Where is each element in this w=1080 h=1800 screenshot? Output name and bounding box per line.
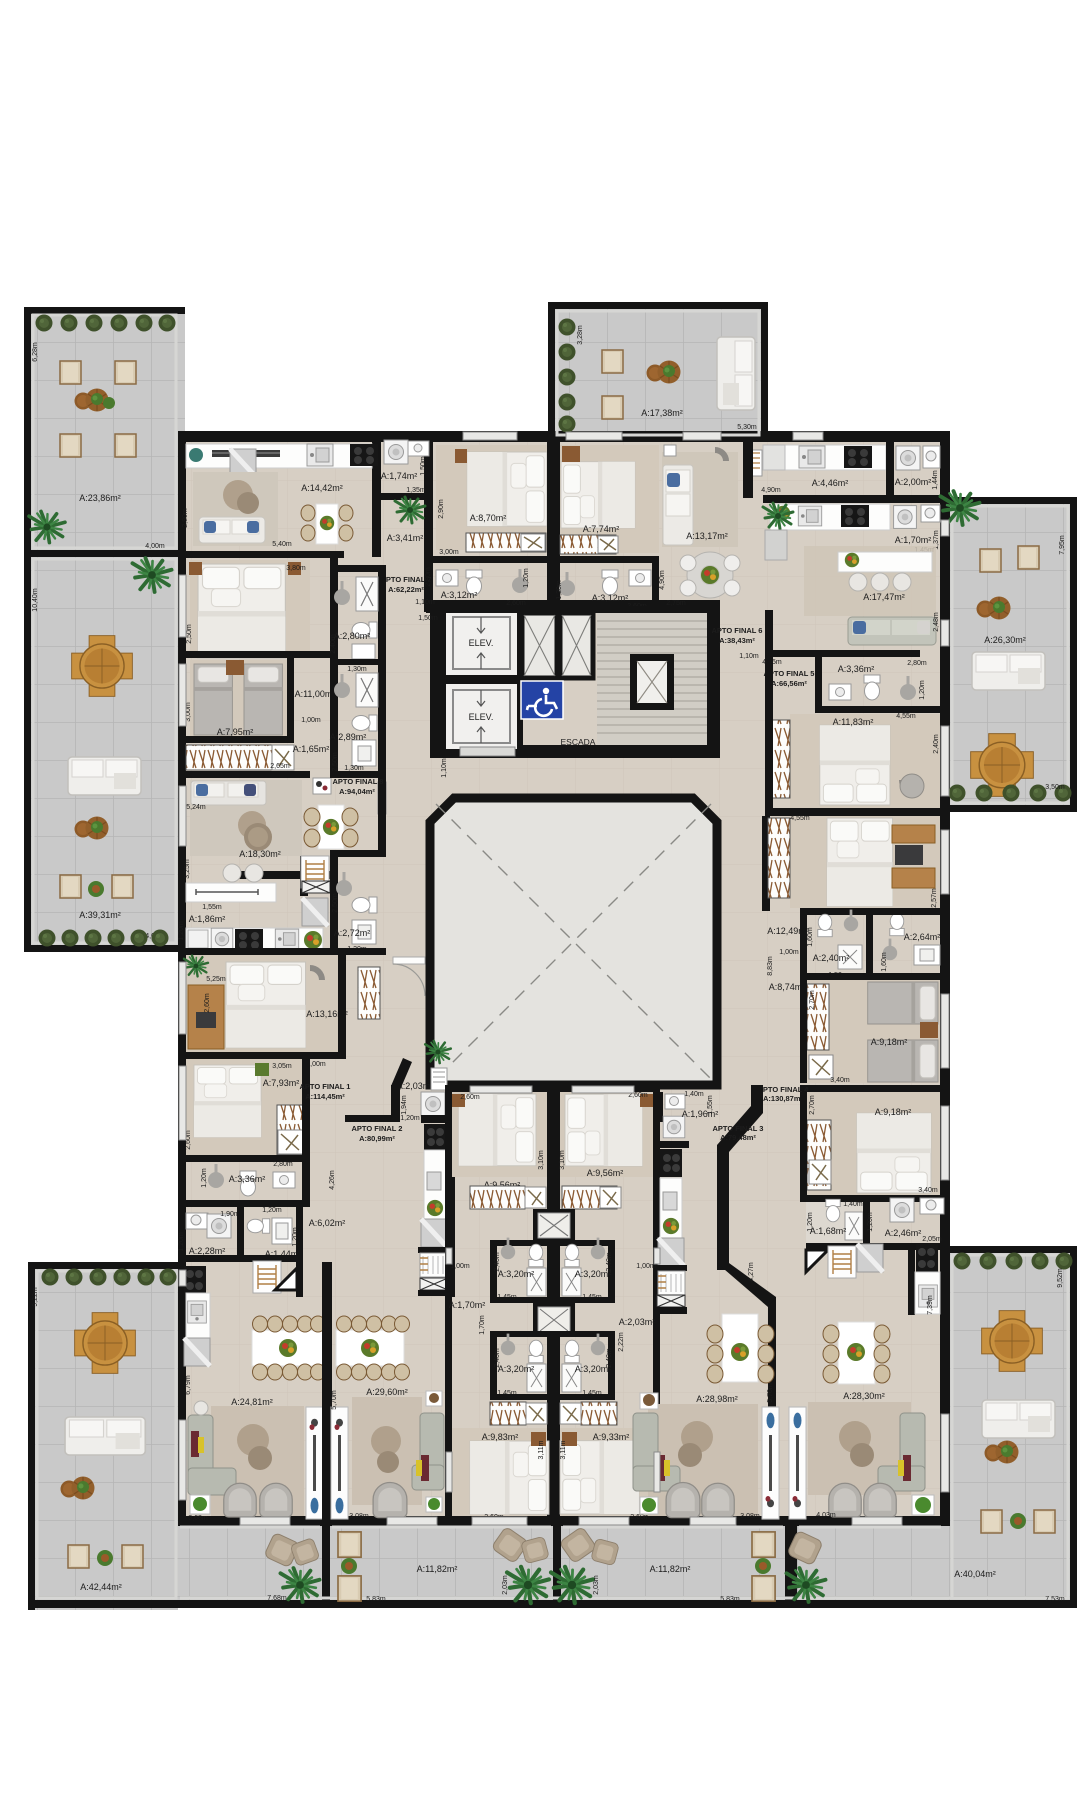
svg-text:5,30m: 5,30m bbox=[737, 424, 757, 431]
svg-text:3,10m: 3,10m bbox=[559, 1150, 566, 1170]
svg-text:5,70m: 5,70m bbox=[331, 1390, 338, 1410]
svg-text:APTO FINAL 2: APTO FINAL 2 bbox=[352, 1124, 403, 1133]
svg-text:A:4,46m²: A:4,46m² bbox=[812, 478, 849, 488]
svg-text:A:3,36m²: A:3,36m² bbox=[229, 1174, 266, 1184]
svg-text:A:1,68m²: A:1,68m² bbox=[810, 1226, 847, 1236]
svg-text:A:9,18m²: A:9,18m² bbox=[875, 1107, 912, 1117]
svg-text:A:8,70m²: A:8,70m² bbox=[470, 513, 507, 523]
svg-text:A:3,20m²: A:3,20m² bbox=[498, 1364, 535, 1374]
svg-text:APTO FINAL 1: APTO FINAL 1 bbox=[300, 1082, 351, 1091]
svg-text:A:1,65m²: A:1,65m² bbox=[293, 744, 330, 754]
svg-text:4,55m: 4,55m bbox=[790, 815, 810, 822]
svg-text:A:62,22m²: A:62,22m² bbox=[388, 585, 424, 594]
svg-text:A:11,82m²: A:11,82m² bbox=[650, 1564, 691, 1574]
svg-text:2,80m: 2,80m bbox=[425, 567, 432, 587]
svg-text:4,03m: 4,03m bbox=[816, 1512, 836, 1519]
svg-text:2,22m: 2,22m bbox=[618, 1332, 625, 1352]
svg-text:3,40m: 3,40m bbox=[918, 1187, 938, 1194]
svg-text:3,28m: 3,28m bbox=[577, 325, 584, 345]
svg-text:A:2,80m²: A:2,80m² bbox=[334, 631, 371, 641]
svg-text:1,10m: 1,10m bbox=[739, 653, 759, 660]
svg-text:1,20m: 1,20m bbox=[262, 1207, 282, 1214]
svg-text:A:1,86m²: A:1,86m² bbox=[189, 914, 226, 924]
svg-text:1,00m: 1,00m bbox=[636, 1263, 656, 1270]
svg-text:A:11,82m²: A:11,82m² bbox=[417, 1564, 458, 1574]
svg-text:2,50m: 2,50m bbox=[332, 752, 339, 772]
svg-text:2,70m: 2,70m bbox=[809, 1095, 816, 1115]
svg-text:2,50m: 2,50m bbox=[332, 893, 339, 913]
svg-text:A:9,18m²: A:9,18m² bbox=[871, 1037, 908, 1047]
svg-text:1,00m: 1,00m bbox=[301, 717, 321, 724]
svg-text:1,20m: 1,20m bbox=[807, 1212, 814, 1232]
svg-text:5,83m: 5,83m bbox=[720, 1596, 740, 1603]
svg-text:1,44m: 1,44m bbox=[932, 470, 939, 490]
svg-text:2,60m: 2,60m bbox=[506, 600, 526, 607]
svg-text:2,90m: 2,90m bbox=[438, 499, 445, 519]
svg-text:1,55m: 1,55m bbox=[202, 904, 222, 911]
svg-text:1,00m: 1,00m bbox=[450, 1263, 470, 1270]
svg-text:3,00m: 3,00m bbox=[439, 549, 459, 556]
svg-text:A:1,74m²: A:1,74m² bbox=[381, 471, 418, 481]
svg-text:2,65m: 2,65m bbox=[270, 763, 290, 770]
svg-text:A:28,98m²: A:28,98m² bbox=[696, 1394, 738, 1404]
svg-text:1,10m: 1,10m bbox=[415, 599, 435, 606]
svg-text:2,57m: 2,57m bbox=[931, 888, 938, 908]
svg-text:2,80m: 2,80m bbox=[907, 660, 927, 667]
svg-text:1,35m: 1,35m bbox=[406, 487, 426, 494]
svg-text:A:3,41m²: A:3,41m² bbox=[387, 533, 424, 543]
svg-text:1,20m: 1,20m bbox=[556, 580, 563, 600]
svg-text:4,90m: 4,90m bbox=[761, 487, 781, 494]
svg-text:ELEV.: ELEV. bbox=[469, 712, 494, 722]
svg-text:A:2,00m²: A:2,00m² bbox=[895, 477, 932, 487]
svg-text:A:23,86m²: A:23,86m² bbox=[79, 493, 121, 503]
svg-text:7,95m: 7,95m bbox=[1059, 535, 1066, 555]
svg-text:2,80m: 2,80m bbox=[182, 508, 189, 528]
svg-text:A:18,30m²: A:18,30m² bbox=[239, 849, 281, 859]
svg-text:A:3,20m²: A:3,20m² bbox=[498, 1269, 535, 1279]
svg-text:A:2,40m²: A:2,40m² bbox=[813, 953, 850, 963]
svg-text:4,26m: 4,26m bbox=[329, 1170, 336, 1190]
svg-text:7,68m: 7,68m bbox=[267, 1595, 287, 1602]
svg-text:ELEV.: ELEV. bbox=[469, 638, 494, 648]
svg-text:5,40m: 5,40m bbox=[272, 541, 292, 548]
svg-text:3,11m: 3,11m bbox=[538, 1440, 545, 1459]
svg-text:2,05m: 2,05m bbox=[922, 1236, 942, 1243]
svg-text:A:79,48m²: A:79,48m² bbox=[720, 1133, 756, 1142]
svg-text:3,50m: 3,50m bbox=[1045, 784, 1065, 791]
svg-text:A:6,02m²: A:6,02m² bbox=[309, 1218, 346, 1228]
svg-text:A:2,28m²: A:2,28m² bbox=[189, 1246, 226, 1256]
svg-text:APTO FINAL 3: APTO FINAL 3 bbox=[713, 1124, 764, 1133]
svg-text:2,03m: 2,03m bbox=[593, 1575, 600, 1595]
svg-text:A:24,81m²: A:24,81m² bbox=[231, 1397, 273, 1407]
svg-text:2,80m: 2,80m bbox=[273, 1161, 293, 1168]
svg-text:A:17,38m²: A:17,38m² bbox=[641, 408, 683, 418]
svg-text:4,00m: 4,00m bbox=[145, 543, 165, 550]
svg-text:3,80m: 3,80m bbox=[286, 565, 306, 572]
svg-text:A:26,30m²: A:26,30m² bbox=[984, 635, 1026, 645]
svg-text:6,28m: 6,28m bbox=[32, 342, 39, 362]
svg-text:1,30m: 1,30m bbox=[344, 765, 364, 772]
svg-text:1,20m: 1,20m bbox=[178, 921, 185, 941]
svg-text:4,90m: 4,90m bbox=[659, 570, 666, 590]
svg-text:2,40m: 2,40m bbox=[494, 1348, 501, 1368]
svg-text:A:38,43m²: A:38,43m² bbox=[719, 636, 755, 645]
svg-text:1,20m: 1,20m bbox=[178, 1232, 185, 1252]
svg-text:A:39,31m²: A:39,31m² bbox=[79, 910, 121, 920]
svg-text:A:9,33m²: A:9,33m² bbox=[593, 1432, 630, 1442]
svg-text:1,10m: 1,10m bbox=[441, 758, 448, 778]
svg-text:3,68m: 3,68m bbox=[188, 1515, 208, 1522]
svg-text:A:130,87m²: A:130,87m² bbox=[763, 1094, 804, 1103]
svg-text:5,70m: 5,70m bbox=[767, 1383, 774, 1403]
svg-text:ESCADA: ESCADA bbox=[561, 737, 596, 747]
svg-text:A:29,60m²: A:29,60m² bbox=[366, 1387, 408, 1397]
svg-text:1,50m: 1,50m bbox=[418, 615, 438, 622]
svg-text:A:3,12m²: A:3,12m² bbox=[441, 590, 478, 600]
svg-text:1,70m: 1,70m bbox=[479, 1315, 486, 1335]
svg-text:3,25m: 3,25m bbox=[184, 859, 191, 879]
svg-text:A:9,83m²: A:9,83m² bbox=[482, 1432, 519, 1442]
svg-text:A:2,03m²: A:2,03m² bbox=[619, 1317, 656, 1327]
svg-text:APTO FINAL 6: APTO FINAL 6 bbox=[712, 626, 763, 635]
svg-text:A:11,00m²: A:11,00m² bbox=[295, 689, 336, 699]
svg-text:A:17,47m²: A:17,47m² bbox=[863, 592, 905, 602]
svg-text:APTO FINAL 7: APTO FINAL 7 bbox=[381, 575, 432, 584]
svg-text:8,83m: 8,83m bbox=[767, 956, 774, 976]
svg-text:3,05m: 3,05m bbox=[272, 1063, 292, 1070]
svg-text:A:7,95m²: A:7,95m² bbox=[217, 727, 254, 737]
svg-text:6,79m: 6,79m bbox=[185, 1375, 192, 1395]
svg-text:1,90m: 1,90m bbox=[220, 1211, 240, 1218]
svg-text:1,20m: 1,20m bbox=[919, 680, 926, 700]
svg-text:1,20m: 1,20m bbox=[523, 568, 530, 588]
svg-text:2,40m: 2,40m bbox=[606, 1252, 613, 1272]
svg-text:A:7,93m²: A:7,93m² bbox=[263, 1078, 300, 1088]
svg-text:5,83m: 5,83m bbox=[366, 1596, 386, 1603]
svg-text:2,03m: 2,03m bbox=[502, 1575, 509, 1595]
svg-text:A:8,74m²: A:8,74m² bbox=[769, 982, 806, 992]
svg-text:2,40m: 2,40m bbox=[330, 634, 337, 654]
svg-text:2,60m: 2,60m bbox=[204, 993, 211, 1013]
svg-text:1,30m: 1,30m bbox=[347, 666, 367, 673]
svg-text:9,22m: 9,22m bbox=[32, 1287, 39, 1307]
svg-text:4,27m: 4,27m bbox=[748, 1262, 755, 1282]
svg-text:A:14,42m²: A:14,42m² bbox=[301, 483, 343, 493]
svg-text:A:7,74m²: A:7,74m² bbox=[583, 524, 620, 534]
svg-text:2,60m: 2,60m bbox=[460, 1094, 480, 1101]
svg-text:1,55m: 1,55m bbox=[707, 1095, 714, 1115]
svg-text:A:2,46m²: A:2,46m² bbox=[885, 1228, 922, 1238]
svg-text:2,70m: 2,70m bbox=[809, 990, 816, 1010]
svg-text:1,20m: 1,20m bbox=[400, 1115, 420, 1122]
svg-text:4,55m: 4,55m bbox=[896, 713, 916, 720]
svg-text:1,94m: 1,94m bbox=[401, 1095, 408, 1115]
svg-text:1,20m: 1,20m bbox=[201, 1168, 208, 1188]
svg-text:1,60m: 1,60m bbox=[881, 952, 888, 972]
svg-text:A:2,72m²: A:2,72m² bbox=[334, 928, 371, 938]
svg-text:A:3,36m²: A:3,36m² bbox=[838, 664, 875, 674]
svg-text:2,40m: 2,40m bbox=[606, 1348, 613, 1368]
svg-text:A:3,12m²: A:3,12m² bbox=[592, 593, 629, 603]
svg-text:A:42,44m²: A:42,44m² bbox=[80, 1582, 122, 1592]
svg-text:1,40m: 1,40m bbox=[684, 1091, 704, 1098]
svg-text:2,60m: 2,60m bbox=[630, 1514, 650, 1521]
svg-text:1,00m: 1,00m bbox=[779, 949, 799, 956]
svg-text:1,60m: 1,60m bbox=[807, 927, 814, 947]
svg-text:1,50m: 1,50m bbox=[420, 456, 427, 476]
svg-text:A:1,70m²: A:1,70m² bbox=[895, 535, 932, 545]
svg-text:7,39m: 7,39m bbox=[927, 1295, 934, 1315]
svg-text:2,40m: 2,40m bbox=[933, 734, 940, 754]
svg-text:7,53m: 7,53m bbox=[1045, 1596, 1065, 1603]
svg-text:APTO FINAL 8: APTO FINAL 8 bbox=[333, 777, 384, 786]
svg-text:A:80,99m²: A:80,99m² bbox=[359, 1134, 395, 1143]
svg-text:3,11m: 3,11m bbox=[560, 1440, 567, 1459]
svg-text:5,25m: 5,25m bbox=[206, 976, 226, 983]
svg-text:A:13,17m²: A:13,17m² bbox=[686, 531, 728, 541]
svg-text:3,08m: 3,08m bbox=[349, 1513, 369, 1520]
svg-text:5,24m: 5,24m bbox=[186, 804, 206, 811]
svg-text:2,40m: 2,40m bbox=[494, 1252, 501, 1272]
svg-text:2,75m: 2,75m bbox=[666, 600, 686, 607]
svg-text:3,40m: 3,40m bbox=[830, 1077, 850, 1084]
svg-text:10,40m: 10,40m bbox=[32, 588, 39, 612]
svg-text:A:94,04m²: A:94,04m² bbox=[339, 787, 375, 796]
svg-text:A:9,56m²: A:9,56m² bbox=[587, 1168, 624, 1178]
svg-text:1,20m: 1,20m bbox=[867, 1212, 874, 1232]
svg-text:9,52m: 9,52m bbox=[1057, 1268, 1064, 1288]
svg-text:3,10m: 3,10m bbox=[538, 1150, 545, 1170]
svg-text:A:1,70m²: A:1,70m² bbox=[449, 1300, 486, 1310]
svg-text:A:2,89m²: A:2,89m² bbox=[330, 732, 367, 742]
svg-text:3,08m: 3,08m bbox=[740, 1513, 760, 1520]
svg-text:A:28,30m²: A:28,30m² bbox=[843, 1391, 885, 1401]
svg-text:A:66,56m²: A:66,56m² bbox=[771, 679, 807, 688]
svg-text:2,50m: 2,50m bbox=[186, 624, 193, 644]
svg-text:A:40,04m²: A:40,04m² bbox=[954, 1569, 996, 1579]
svg-text:1,40m: 1,40m bbox=[843, 1201, 863, 1208]
svg-text:2,48m: 2,48m bbox=[933, 612, 940, 632]
svg-text:A:11,83m²: A:11,83m² bbox=[833, 717, 874, 727]
svg-text:A:2,64m²: A:2,64m² bbox=[904, 932, 941, 942]
svg-text:A:114,45m²: A:114,45m² bbox=[305, 1092, 345, 1101]
